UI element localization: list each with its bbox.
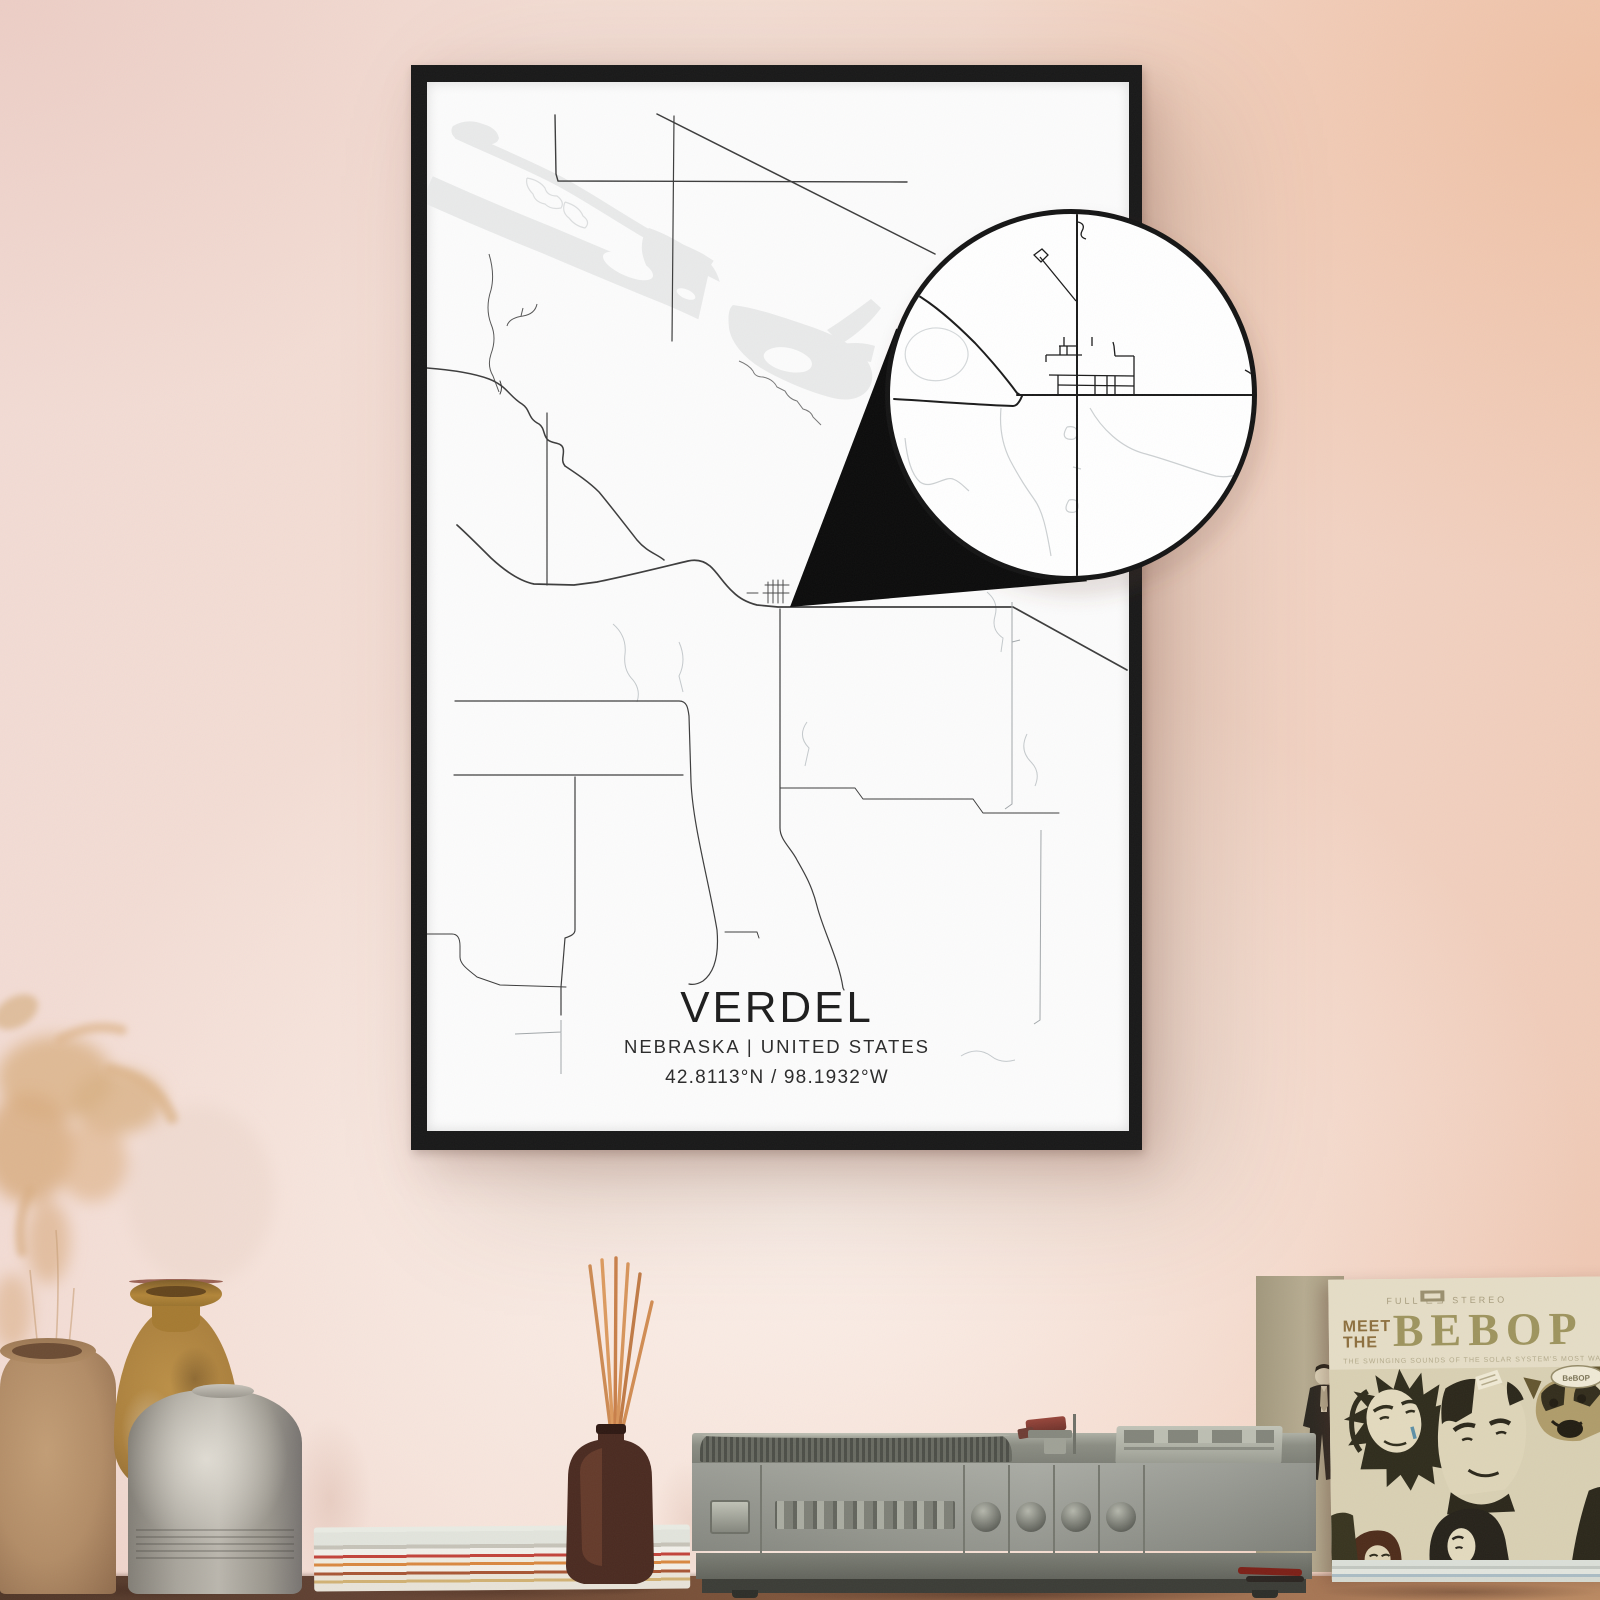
svg-text:42.8113°N / 98.1932°W: 42.8113°N / 98.1932°W (665, 1067, 889, 1088)
svg-text:NEBRASKA | UNITED STATES: NEBRASKA | UNITED STATES (624, 1036, 930, 1057)
svg-text:THE: THE (1343, 1334, 1378, 1351)
svg-text:BeBOP: BeBOP (1562, 1374, 1590, 1383)
svg-text:MEET: MEET (1343, 1318, 1392, 1336)
svg-text:BEBOP: BEBOP (1392, 1303, 1584, 1356)
svg-text:VERDEL: VERDEL (680, 983, 873, 1032)
